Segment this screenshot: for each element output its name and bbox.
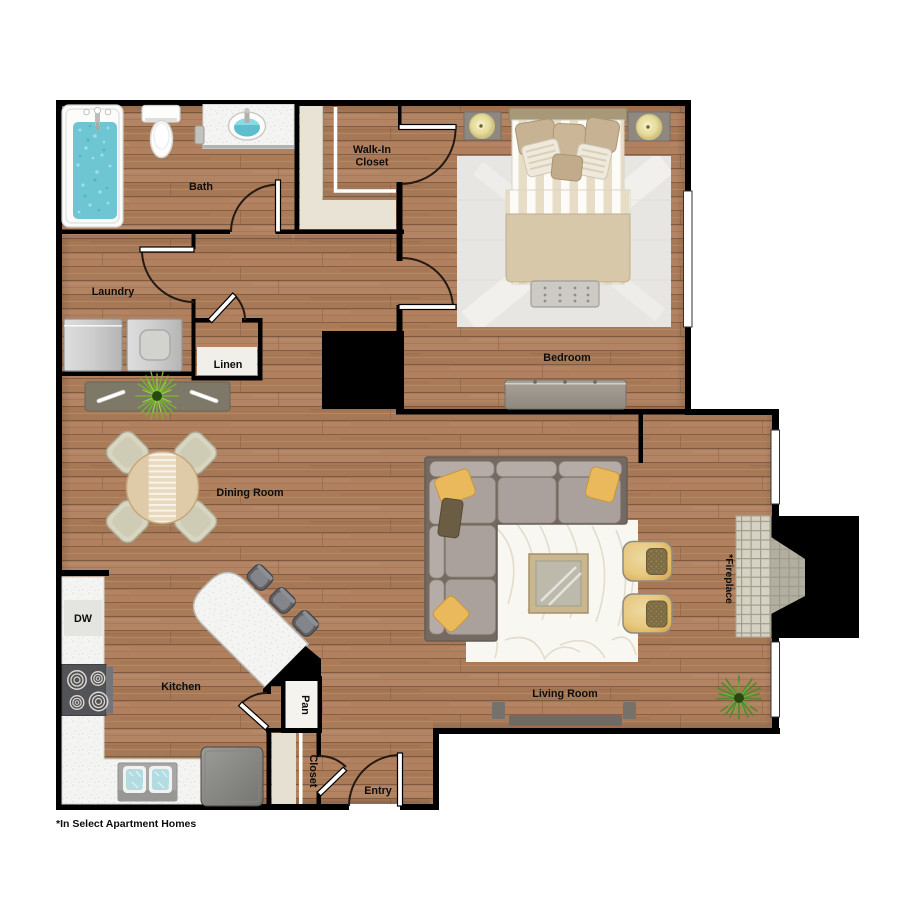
svg-text:Kitchen: Kitchen — [161, 681, 201, 693]
svg-text:Closet: Closet — [356, 157, 389, 169]
svg-text:Pan: Pan — [299, 695, 311, 715]
svg-text:*Fireplace: *Fireplace — [723, 554, 734, 604]
svg-text:Bedroom: Bedroom — [543, 352, 590, 364]
svg-text:Linen: Linen — [214, 359, 243, 371]
svg-text:Dining Room: Dining Room — [216, 487, 283, 499]
svg-text:*In Select Apartment Homes: *In Select Apartment Homes — [56, 818, 196, 830]
svg-text:Laundry: Laundry — [92, 286, 135, 298]
svg-text:DW: DW — [74, 613, 93, 625]
svg-text:Entry: Entry — [364, 785, 392, 797]
svg-text:Walk-In: Walk-In — [353, 144, 391, 156]
svg-text:Living Room: Living Room — [532, 688, 597, 700]
svg-text:Closet: Closet — [307, 755, 319, 788]
svg-text:Bath: Bath — [189, 181, 213, 193]
